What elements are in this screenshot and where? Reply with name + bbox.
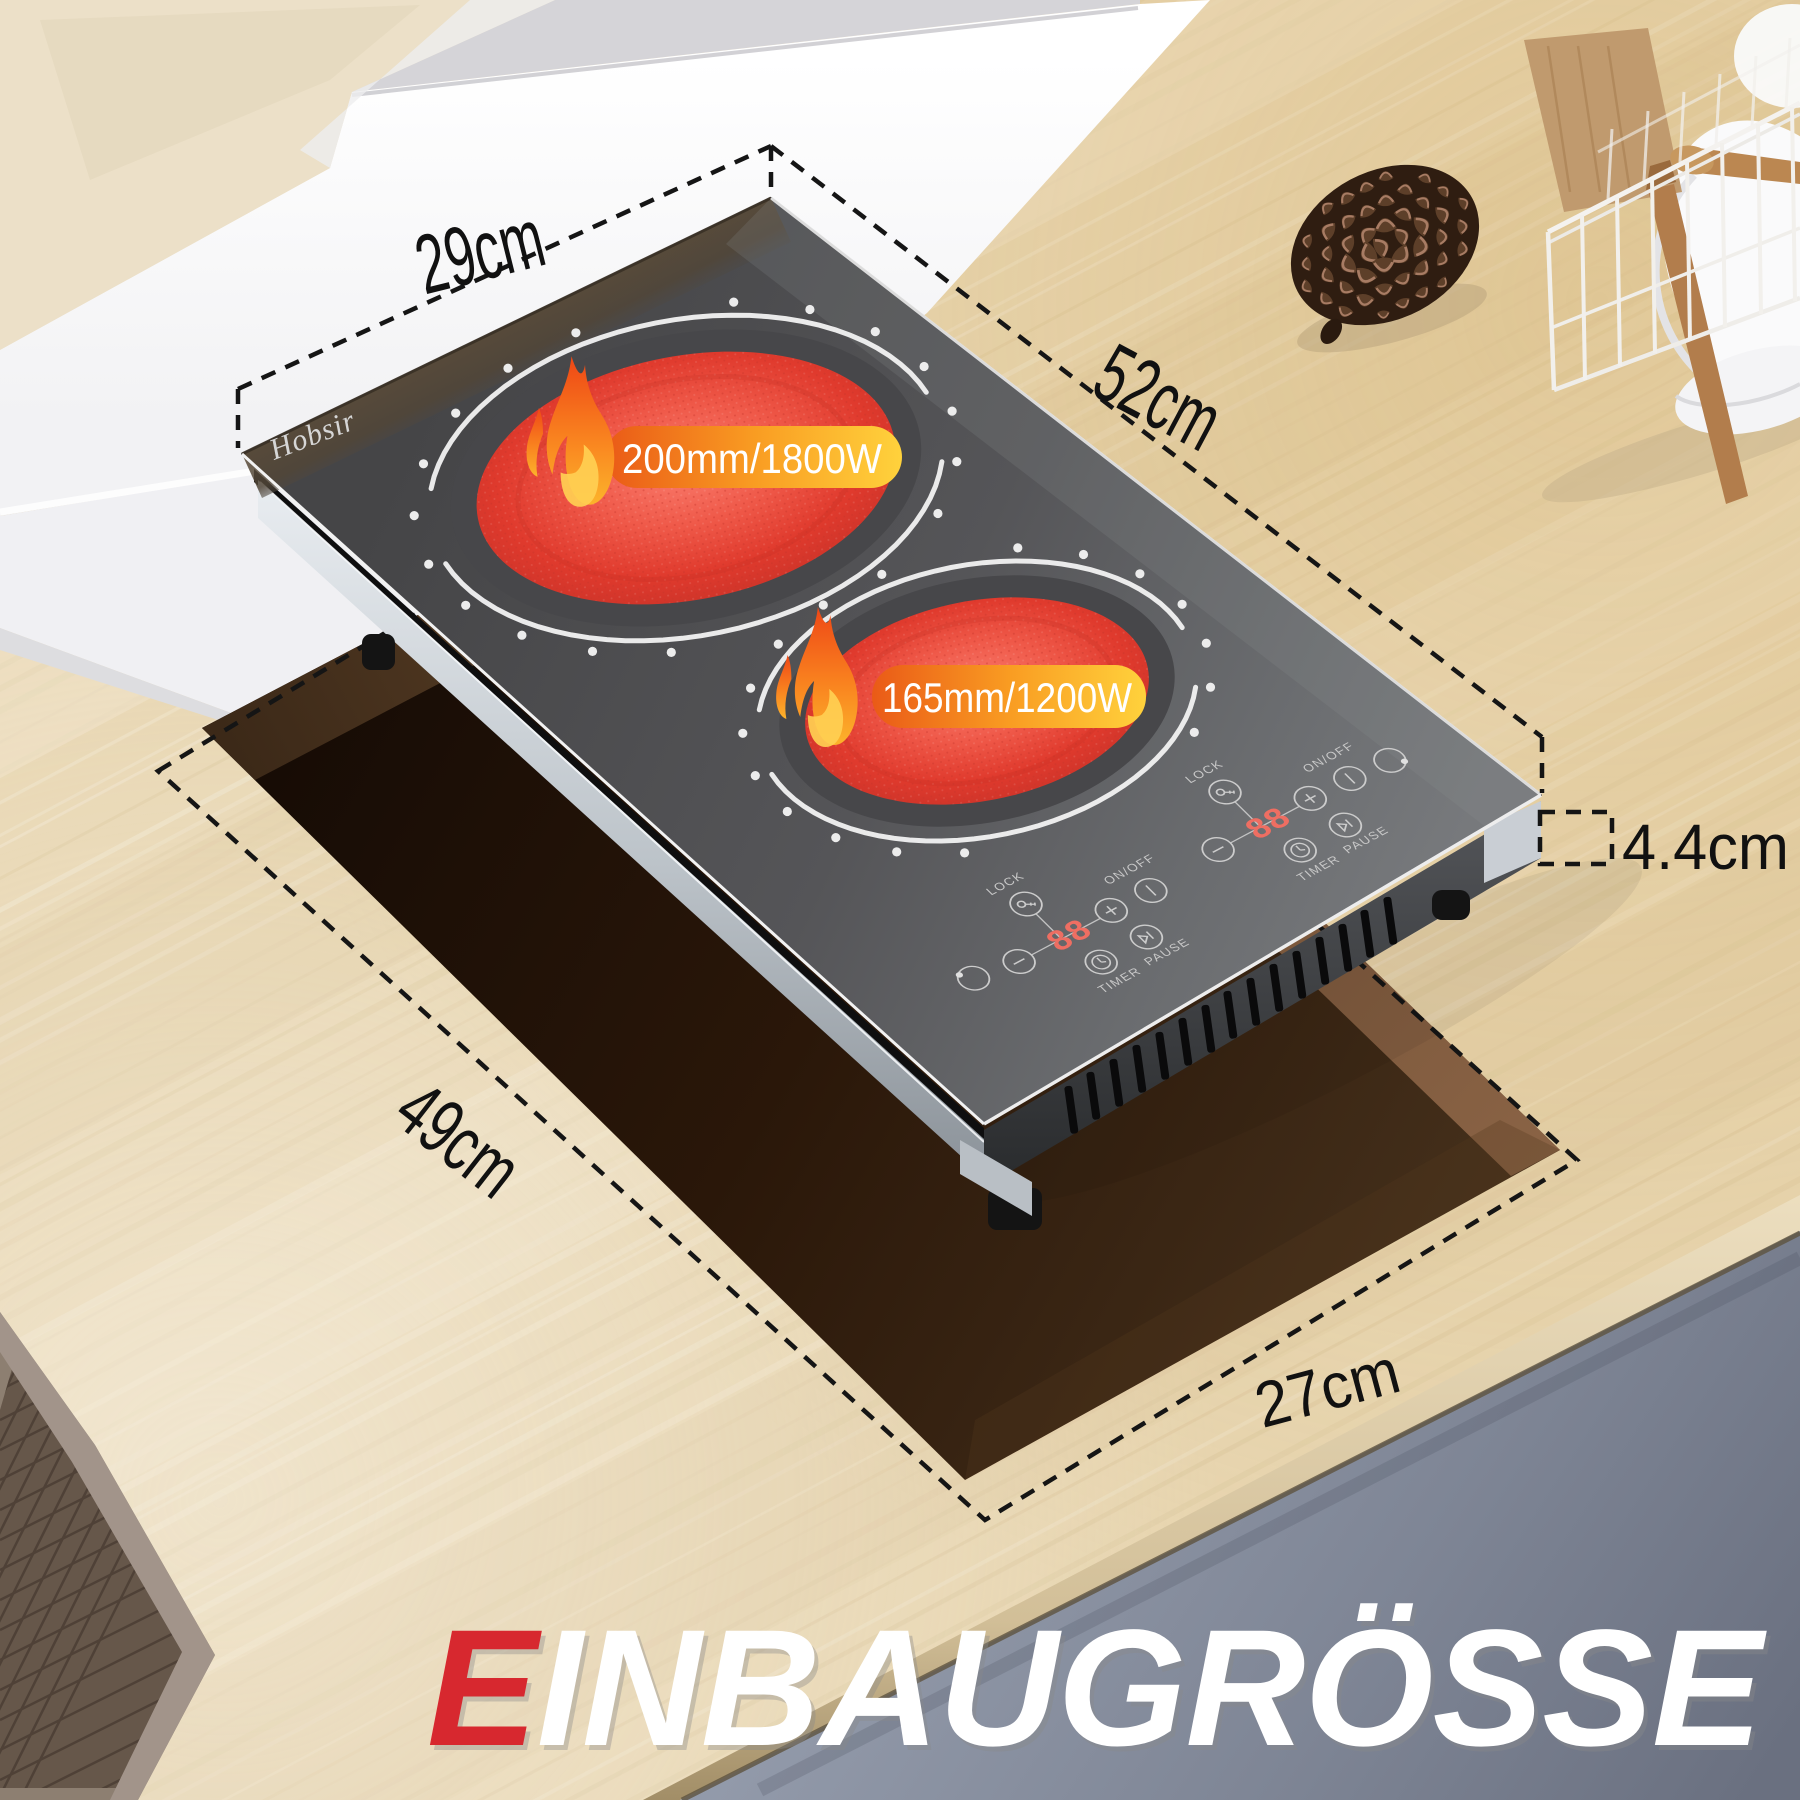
- svg-text:EINBAUGRÖSSE: EINBAUGRÖSSE: [427, 1596, 1767, 1781]
- svg-text:165mm/1200W: 165mm/1200W: [882, 674, 1132, 721]
- svg-text:200mm/1800W: 200mm/1800W: [622, 435, 882, 482]
- svg-text:4.4cm: 4.4cm: [1622, 811, 1789, 883]
